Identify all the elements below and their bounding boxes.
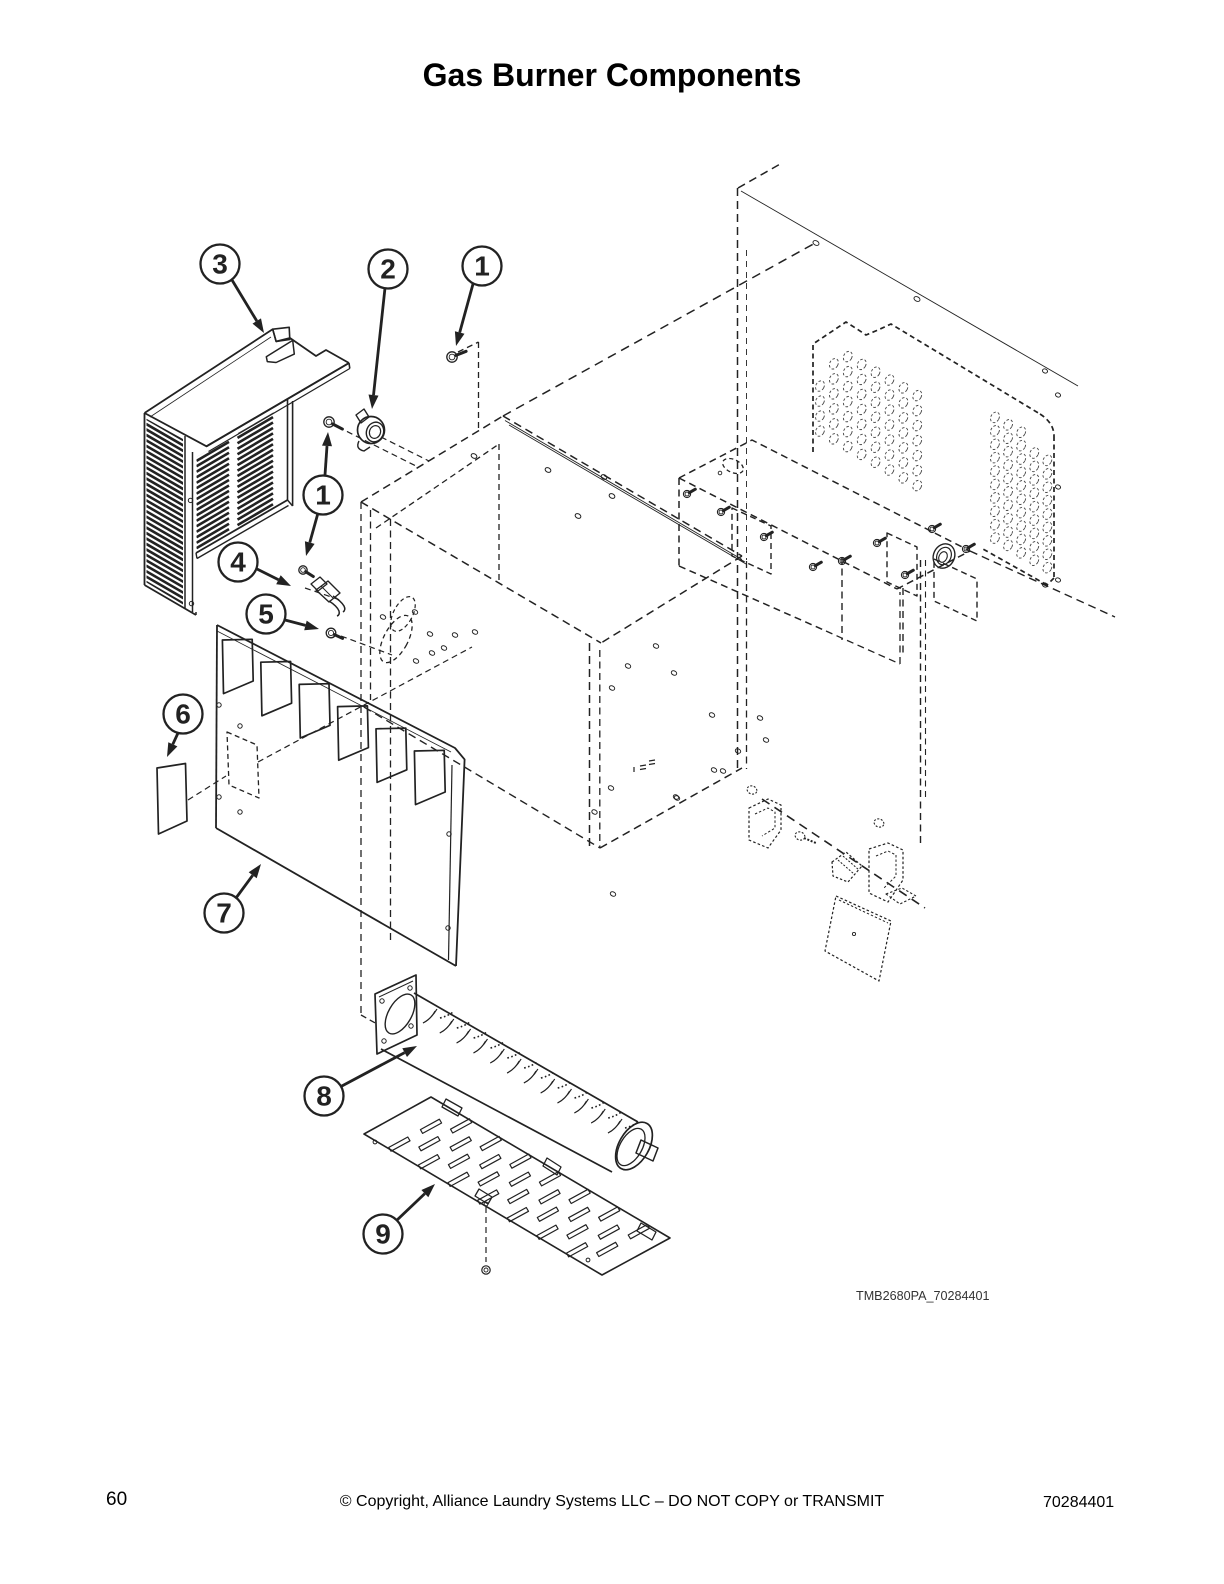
svg-text:1: 1: [474, 251, 490, 282]
svg-text:2: 2: [380, 254, 396, 285]
svg-text:3: 3: [212, 249, 228, 280]
svg-text:5: 5: [258, 599, 274, 630]
svg-text:7: 7: [216, 898, 232, 929]
svg-text:9: 9: [375, 1219, 391, 1250]
svg-text:1: 1: [315, 480, 331, 511]
svg-text:4: 4: [230, 547, 246, 578]
svg-text:8: 8: [316, 1081, 332, 1112]
svg-text:6: 6: [175, 699, 191, 730]
